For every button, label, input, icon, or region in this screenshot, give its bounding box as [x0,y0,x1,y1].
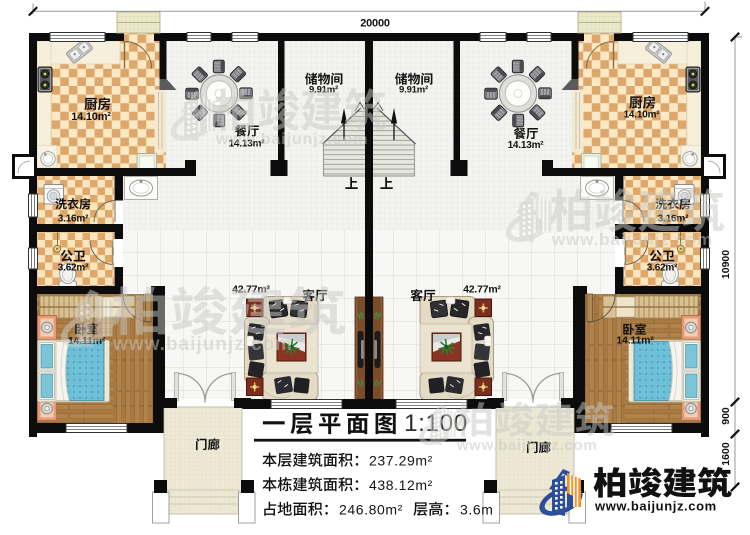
svg-text:www.baijunjz.com: www.baijunjz.com [456,437,598,454]
svg-text:14.13m²: 14.13m² [508,140,545,151]
svg-text:14.10m²: 14.10m² [624,109,661,120]
svg-text:3.6m: 3.6m [460,502,494,518]
svg-text:900: 900 [720,407,732,425]
svg-text:3.62m²: 3.62m² [58,263,89,274]
svg-text:14.10m²: 14.10m² [71,111,111,123]
svg-text:14.11m²: 14.11m² [616,335,654,347]
svg-text:20000: 20000 [360,18,390,30]
svg-text:www.baijunjz.com: www.baijunjz.com [112,334,293,355]
svg-text:1600: 1600 [720,442,732,466]
svg-text:237.29m²: 237.29m² [369,453,433,469]
svg-text:www.baijunjz.com: www.baijunjz.com [594,499,717,514]
svg-text:www.baijunjz.com: www.baijunjz.com [215,131,369,148]
svg-text:246.80m²: 246.80m² [339,502,403,518]
svg-text:9.91m²: 9.91m² [399,85,428,96]
svg-text:www.baijunjz.com: www.baijunjz.com [551,230,713,249]
svg-text:10900: 10900 [720,250,732,279]
svg-text:3.16m²: 3.16m² [58,214,89,225]
svg-text:42.77m²: 42.77m² [463,284,501,296]
svg-text:438.12m²: 438.12m² [369,477,433,493]
svg-text:3.62m²: 3.62m² [647,263,678,274]
